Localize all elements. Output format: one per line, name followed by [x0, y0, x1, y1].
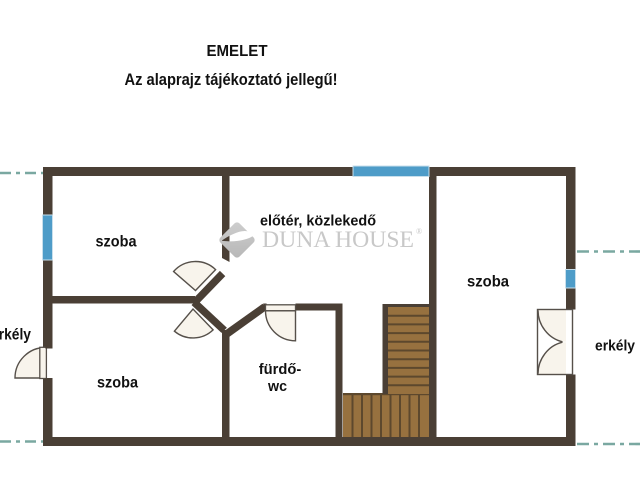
svg-text:erkély: erkély: [595, 338, 636, 355]
svg-text:előtér, közlekedő: előtér, közlekedő: [260, 213, 376, 230]
svg-text:szoba: szoba: [96, 234, 137, 251]
svg-text:szoba: szoba: [467, 274, 509, 291]
svg-text:szoba: szoba: [97, 375, 138, 392]
svg-text:EMELET: EMELET: [207, 43, 268, 60]
svg-text:Az alaprajz tájékoztató jelleg: Az alaprajz tájékoztató jellegű!: [125, 70, 338, 89]
svg-text:fürdő-: fürdő-: [259, 361, 302, 378]
svg-text:®: ®: [416, 227, 422, 236]
svg-text:wc: wc: [267, 379, 287, 395]
svg-text:DUNA HOUSE: DUNA HOUSE: [262, 227, 414, 252]
svg-text:erkély: erkély: [0, 327, 31, 344]
